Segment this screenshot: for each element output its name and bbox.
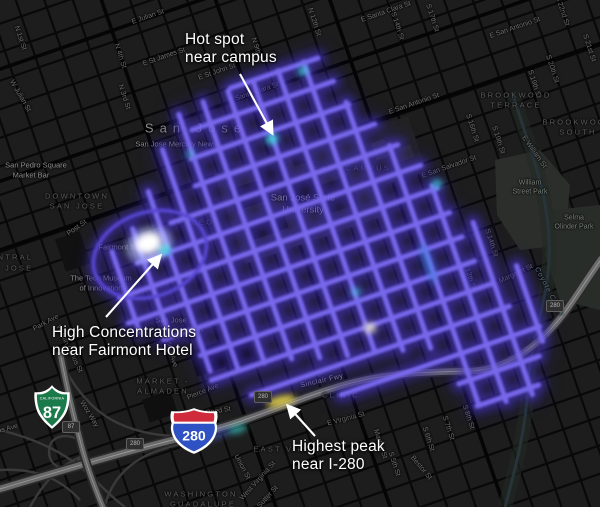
i280-cyan-spot bbox=[228, 423, 248, 436]
annotation-fairmont-hotel: High Concentrations near Fairmont Hotel bbox=[52, 324, 196, 360]
map-canvas[interactable]: N 1st StW Julian StE Julian StN 4th StN … bbox=[0, 0, 600, 507]
annotation-line: Highest peak bbox=[292, 438, 385, 456]
route-marker-280: 280 bbox=[546, 300, 564, 312]
san-salvador-pale-spot bbox=[364, 323, 376, 333]
annotation-i280-peak: Highest peak near I-280 bbox=[292, 438, 385, 474]
route-marker-87: 87 bbox=[62, 421, 80, 433]
annotation-line: High Concentrations bbox=[52, 324, 196, 342]
i280-interstate-shield: 280 bbox=[168, 407, 220, 455]
annotation-line: Hot spot bbox=[185, 31, 277, 49]
annotation-hot-spot-campus: Hot spot near campus bbox=[185, 31, 277, 67]
i280-number-text: 280 bbox=[182, 427, 206, 443]
ca87-number-text: 87 bbox=[43, 404, 61, 422]
heatmap-overlay bbox=[0, 0, 600, 507]
sinclair-cyan-spot bbox=[351, 288, 361, 296]
annotation-line: near campus bbox=[185, 49, 277, 67]
annotation-line: near I-280 bbox=[292, 456, 385, 474]
annotation-line: near Fairmont Hotel bbox=[52, 342, 196, 360]
route-marker-280: 280 bbox=[254, 391, 272, 403]
route-marker-280: 280 bbox=[126, 438, 144, 450]
ca87-banner-text: CALIFORNIA bbox=[40, 397, 65, 401]
